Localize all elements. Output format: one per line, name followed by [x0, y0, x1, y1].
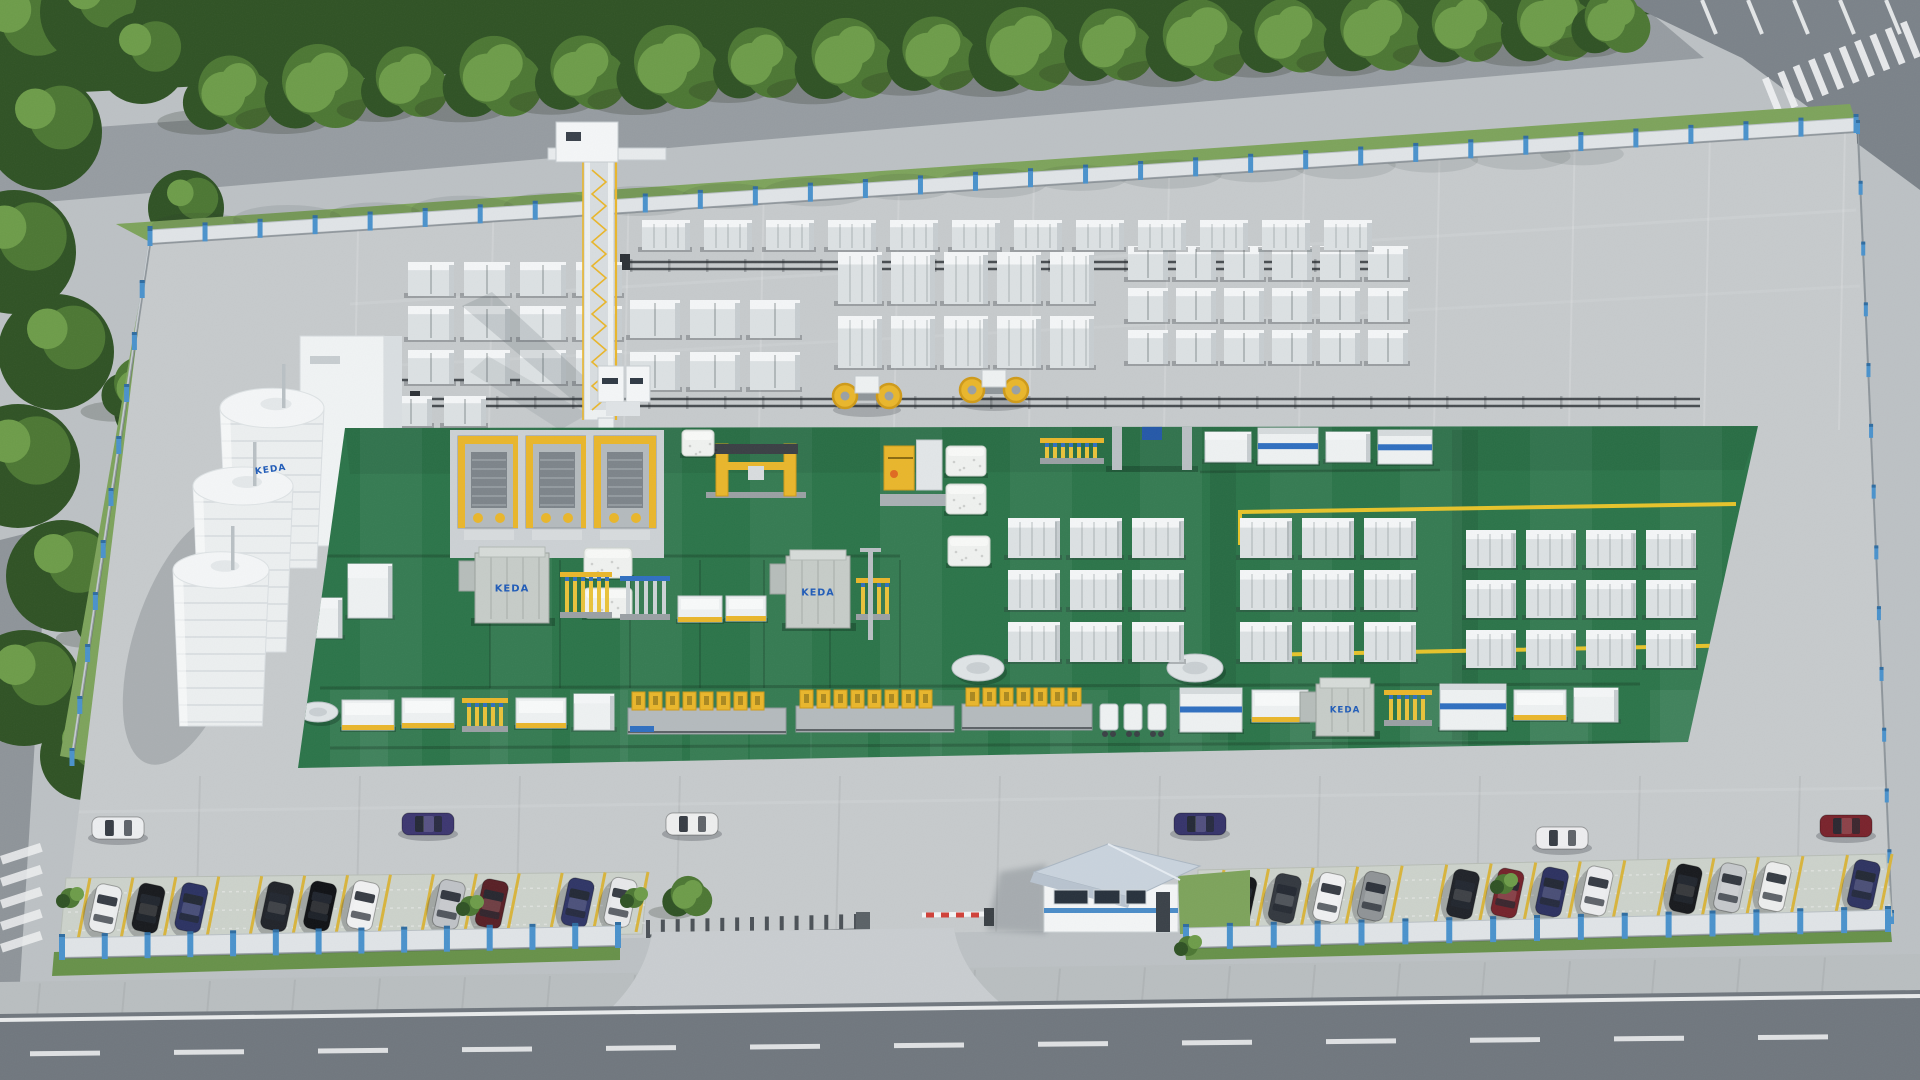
factory-aerial-render: Aerial 3D rendering of a fenced AAC bloc…: [0, 0, 1920, 1080]
grain: [0, 0, 1920, 1080]
texture-overlay: [0, 0, 1920, 1080]
scene-canvas: Aerial 3D rendering of a fenced AAC bloc…: [0, 0, 1920, 1080]
